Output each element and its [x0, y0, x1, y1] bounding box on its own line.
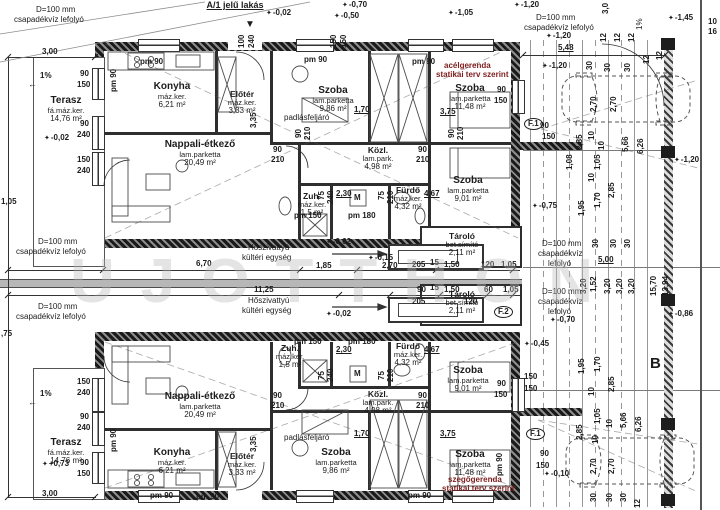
elevation-label: ✦-1,20 — [514, 1, 539, 9]
dim-label: 150 — [77, 470, 90, 478]
dim-label: 150 — [524, 373, 537, 381]
elevation-label: ✦-0,10 — [544, 470, 569, 478]
dim-label: 10 — [598, 141, 606, 150]
elevation-marker-icon: ✦ — [514, 2, 520, 9]
washing-machine-label: M — [354, 370, 361, 378]
room-ar: 4,98 m² — [364, 163, 391, 172]
dim-label: 2,30 — [336, 190, 352, 198]
dim-label: 3,00 — [42, 48, 58, 56]
dim-label: 3,20 — [604, 278, 612, 294]
dim-label: 12 — [628, 33, 636, 42]
dim-label: 10 — [588, 387, 596, 396]
room-ar: 20,49 m² — [184, 411, 216, 420]
room-label-konyha-also: Konyhamáz.ker.6,21 m² — [137, 448, 207, 476]
room-ar: 2,11 m² — [449, 249, 476, 258]
elevation-marker-icon: ✦ — [532, 203, 538, 210]
dim-label: 2,85 — [576, 424, 584, 440]
note-label: csapadékvíz — [538, 298, 582, 306]
elevation-label: ✦-1,20 — [542, 62, 567, 70]
dim-label: 2,85 — [576, 134, 584, 150]
attic-access-label: padlásfeljáró — [284, 114, 329, 122]
note-label: kültéri egység — [242, 254, 291, 262]
room-label-nappali-felso: Nappali-étkezőlam.parketta20,49 m² — [152, 140, 248, 168]
elevation-label: ✦-0,75 — [532, 202, 557, 210]
elevation-label: ✦-0,02 — [326, 238, 351, 246]
reference-marker: F.1 — [526, 428, 545, 440]
dim-label: 1,70 — [594, 192, 602, 208]
reference-marker: F.2 — [494, 306, 513, 318]
dim-label: 90 — [418, 392, 427, 400]
room-label-eloter-also: Előtérmáz.ker.3,33 m² — [207, 452, 277, 478]
structural-note: szegőgerenda — [448, 476, 502, 484]
room-ar: 9,01 m² — [454, 385, 481, 394]
dim-label: 6,70 — [196, 260, 212, 268]
dim-label: 12 — [634, 499, 642, 508]
elevation-label: ✦-1,05 — [448, 9, 473, 17]
dim-label: 240 — [77, 167, 90, 175]
dim-label: 150 — [330, 35, 338, 48]
dim-label: 100 — [238, 35, 246, 48]
slope-label: 1% — [40, 390, 52, 398]
structural-note: statikai terv szerint — [436, 71, 508, 79]
dim-label: 1,08 — [566, 154, 574, 170]
elevation-marker-icon: ✦ — [524, 341, 530, 348]
elevation-marker-icon: ✦ — [546, 33, 552, 40]
dim-label: 6,26 — [637, 138, 645, 154]
dim-label: 3,75 — [440, 108, 456, 116]
room-label-terasz-felso: Teraszfá.máz.ker.14,76 m² — [31, 96, 101, 124]
note-label: D=100 mm — [542, 240, 581, 248]
dim-label: 60 — [484, 286, 493, 294]
elevation-marker-icon: ✦ — [550, 317, 556, 324]
room-label-szoba3-felso: Szobalam.parketta9,01 m² — [433, 176, 503, 204]
note-label: csapadékvíz lefolyó — [16, 313, 86, 321]
apartment-label: A/1 jelű lakás — [206, 0, 264, 10]
note-label: csapadékvíz lefolyó — [14, 16, 84, 24]
room-label-kozl-also: Közl.lam.park.4,98 m² — [343, 390, 413, 416]
elevation-marker-icon: ✦ — [448, 10, 454, 17]
dim-label: 240 — [77, 424, 90, 432]
dim-label: 2,70 — [608, 458, 616, 474]
structural-note: acélgerenda — [444, 62, 491, 70]
dim-label: 3,35 — [250, 436, 258, 452]
dim-label: 2,70 — [590, 96, 598, 112]
room-label-eloter-felso: Előtérmáz.ker.3,33 m² — [207, 90, 277, 116]
note-label: D=100 mm — [536, 14, 575, 22]
elevation-label: ✦-0,45 — [524, 340, 549, 348]
room-ar: 1,5 m² — [279, 361, 302, 370]
dim-label: 150 — [524, 385, 537, 393]
dim-label: 3,0 — [602, 3, 610, 14]
dim-label: 150 — [340, 35, 348, 48]
dim-label: 10 — [606, 419, 614, 428]
attic-access-label: padlásfeljáró — [284, 434, 329, 442]
dim-label: 75 — [318, 191, 326, 200]
dim-label: 75 — [378, 191, 386, 200]
dim-label: 1,50 — [444, 261, 460, 269]
room-ar: 4,98 m² — [364, 407, 391, 416]
room-ar: 6,21 m² — [158, 467, 185, 476]
elevation-marker-icon: ✦ — [42, 461, 48, 468]
dim-label: 150 — [77, 81, 90, 89]
dim-label: 240 — [327, 191, 335, 204]
dim-label: pm 90 — [110, 69, 118, 92]
dim-label: 210 — [416, 402, 429, 410]
dim-label: 5,66 — [622, 136, 630, 152]
floor-plan-canvas: A/1 jelű lakás UJOTTHON Teraszfá.máz.ker… — [0, 0, 720, 510]
note-label: D=100 mm — [38, 238, 77, 246]
dim-label: 5,00 — [598, 256, 614, 264]
elevation-label: ✦-1,45 — [668, 14, 693, 22]
dim-label: 240 — [77, 389, 90, 397]
room-ar: 4,32 m² — [394, 203, 421, 212]
dim-label: 30 — [590, 493, 598, 502]
dim-label: 150 — [542, 133, 555, 141]
dim-label: 205 — [412, 261, 425, 269]
dim-label: pm 90 — [408, 492, 431, 500]
washing-machine-label: M — [354, 194, 361, 202]
dim-label: 5,48 — [558, 44, 574, 52]
dim-label: 13,94 — [662, 276, 670, 296]
dim-label: 12 — [614, 33, 622, 42]
dim-label: 1,85 — [316, 262, 332, 270]
note-label: Hőszivattyú — [248, 244, 289, 252]
room-ar: 4,32 m² — [394, 359, 421, 368]
dim-label: 30 — [624, 63, 632, 72]
elevation-label: ✦-0,02 — [326, 310, 351, 318]
elevation-label: ✦-0,70 — [550, 316, 575, 324]
dim-label: 1,70 — [354, 430, 370, 438]
dim-label: 3,00 — [42, 490, 58, 498]
dim-label: pm 90 — [140, 58, 163, 66]
dim-label: 150 — [77, 378, 90, 386]
dim-label: 6,26 — [635, 416, 643, 432]
dim-label: 90 — [273, 392, 282, 400]
dim-label: 1,05 — [501, 261, 517, 269]
dim-label: 240 — [327, 369, 335, 382]
room-ar: 3,33 m² — [228, 469, 255, 478]
elevation-label: ✦-0,86 — [668, 310, 693, 318]
dim-label: pm 180 — [348, 212, 376, 220]
dim-label: 210 — [416, 156, 429, 164]
dim-label: pm 90 — [110, 429, 118, 452]
dim-label: 10 — [588, 131, 596, 140]
dim-label: pm 90 — [496, 453, 504, 476]
room-label-zuh-also: Zuh.máz.ker.1,5 m² — [255, 344, 325, 370]
dim-label: pm 90 — [412, 58, 435, 66]
elevation-label: ✦-0,02 — [266, 9, 291, 17]
dim-label: 30 — [624, 239, 632, 248]
dim-label: pm 90 — [150, 492, 173, 500]
dim-label: 210 — [271, 402, 284, 410]
room-ar: 2,11 m² — [449, 307, 476, 316]
room-label-szoba3-also: Szobalam.parketta9,01 m² — [433, 366, 503, 394]
room-ar: 6,21 m² — [158, 101, 185, 110]
dim-label: 4,67 — [424, 346, 440, 354]
dim-label: 90 — [418, 146, 427, 154]
slope-arrow-icon: ← — [28, 80, 37, 89]
dim-label: 3,20 — [616, 278, 624, 294]
dim-label: 2,70 — [590, 458, 598, 474]
elevation-marker-icon: ✦ — [674, 157, 680, 164]
elevation-marker-icon: ✦ — [44, 135, 50, 142]
dim-label: pm 90 — [304, 56, 327, 64]
dim-label: 90 — [417, 286, 426, 294]
dim-label: 75 — [378, 371, 386, 380]
elevation-marker-icon: ✦ — [326, 239, 332, 246]
note-label: D=100 mm — [542, 288, 581, 296]
dim-label: 75 — [318, 371, 326, 380]
dim-label: 90 — [80, 70, 89, 78]
dim-label: 10 — [588, 173, 596, 182]
elevation-marker-icon: ✦ — [326, 311, 332, 318]
elevation-marker-icon: ✦ — [542, 63, 548, 70]
dim-label: 3,20 — [628, 278, 636, 294]
dim-label: 2,85 — [608, 376, 616, 392]
room-label-kozl-felso: Közl.lam.park.4,98 m² — [343, 146, 413, 172]
elevation-marker-icon: ✦ — [342, 2, 348, 9]
structural-note: statikai terv szerint — [442, 485, 514, 493]
dim-label: 90 — [295, 129, 303, 138]
entrance-marker-icon: ▼ — [245, 20, 255, 30]
dim-label: 2,85 — [608, 182, 616, 198]
elevation-label: ✦-1,20 — [674, 156, 699, 164]
elevation-label: ✦+0,73 — [42, 460, 69, 468]
dim-label: 2,70 — [610, 96, 618, 112]
room-ar: 20,49 m² — [184, 159, 216, 168]
dim-label: 30 — [606, 493, 614, 502]
note-label: Hőszivattyú — [248, 297, 289, 305]
room-ar: 14,76 m² — [50, 115, 82, 124]
dim-label: 16 — [708, 28, 717, 36]
dim-label: 90 — [448, 129, 456, 138]
dim-label: 10 — [592, 435, 600, 444]
dim-label: 90 — [80, 120, 89, 128]
dim-label: 12 — [656, 51, 664, 60]
dim-label: 1,70 — [594, 356, 602, 372]
dim-label: 30 — [620, 493, 628, 502]
elevation-label: ✦-0,70 — [342, 1, 367, 9]
dim-label: 90 — [540, 450, 549, 458]
dim-label: 150 — [494, 97, 507, 105]
dim-label: 210 — [457, 127, 465, 140]
dim-label: pm 150 — [294, 212, 322, 220]
dim-label: 1,95 — [578, 358, 586, 374]
dim-label: pm 150 — [294, 338, 322, 346]
room-label-nappali-also: Nappali-étkezőlam.parketta20,49 m² — [152, 392, 248, 420]
room-label-szoba1-also: Szobalam.parketta9,86 m² — [301, 448, 371, 476]
dim-label: 150 — [536, 462, 549, 470]
dim-label: ,75 — [1, 330, 12, 338]
slope-label: 1% — [40, 72, 52, 80]
dim-label: 210 — [304, 127, 312, 140]
dim-label: 210 — [387, 369, 395, 382]
note-label: csapadékvíz lefolyó — [16, 248, 86, 256]
dim-label: 210 — [387, 191, 395, 204]
dim-label: 150 — [77, 156, 90, 164]
dim-label: 1,52 — [590, 276, 598, 292]
dim-label: 15 — [430, 284, 439, 292]
dim-label: 1,05 — [503, 286, 519, 294]
elevation-label: ✦-0,02 — [44, 134, 69, 142]
dim-label: 12 — [643, 55, 651, 64]
slope-label: 1% — [636, 18, 644, 30]
elevation-label: ✦-0,50 — [334, 12, 359, 20]
room-label-tarolo-felso: Tárolóbet.símító2,11 m² — [427, 232, 497, 258]
dim-label: 90 — [80, 459, 89, 467]
elevation-marker-icon: ✦ — [368, 255, 374, 262]
dim-label: 3,75 — [440, 430, 456, 438]
dim-label: 30 — [610, 239, 618, 248]
room-label-konyha-felso: Konyhamáz.ker.6,21 m² — [137, 82, 207, 110]
dim-label: 15 — [430, 259, 439, 267]
elevation-marker-icon: ✦ — [668, 15, 674, 22]
dim-label: 30 — [586, 61, 594, 70]
dim-label: 12 — [600, 33, 608, 42]
dim-label: 1,70 — [354, 106, 370, 114]
dim-label: 2,30 — [336, 346, 352, 354]
slope-arrow-icon: ← — [28, 398, 37, 407]
dim-label: 10 — [708, 18, 717, 26]
room-ar: 9,01 m² — [454, 195, 481, 204]
dim-label: 1,50 — [444, 286, 460, 294]
dim-label: 1,05 — [1, 198, 17, 206]
dim-label: 30 — [592, 239, 600, 248]
dim-label: 4,67 — [424, 190, 440, 198]
dim-label: 150 — [494, 391, 507, 399]
note-label: D=100 mm — [36, 6, 75, 14]
dim-label: 11,25 — [254, 286, 274, 294]
dim-label: 90 — [497, 380, 506, 388]
note-label: D=100 mm — [38, 303, 77, 311]
dim-label: 90 — [497, 86, 506, 94]
elevation-marker-icon: ✦ — [668, 311, 674, 318]
dim-label: 3,35 — [250, 112, 258, 128]
dim-label: 90 — [540, 122, 549, 130]
elevation-label: ✦-1,20 — [546, 32, 571, 40]
room-ar: 11,48 m² — [455, 103, 486, 112]
dim-label: 120 — [481, 261, 494, 269]
room-ar: 9,86 m² — [322, 467, 349, 476]
elevation-marker-icon: ✦ — [266, 10, 272, 17]
elevation-marker-icon: ✦ — [544, 471, 550, 478]
dim-label: 30 — [604, 63, 612, 72]
note-label: lefolyó — [548, 260, 571, 268]
dim-label: 240 — [248, 35, 256, 48]
dim-label: 120 — [464, 298, 477, 306]
note-label: csapadékvíz — [538, 250, 582, 258]
section-marker: B — [650, 356, 661, 371]
dim-label: 3,20 — [580, 278, 588, 294]
dim-label: pm 90 — [196, 493, 219, 501]
note-label: kültéri egység — [242, 307, 291, 315]
dim-label: 90 — [273, 146, 282, 154]
dim-label: 210 — [271, 156, 284, 164]
dim-label: 15,70 — [650, 276, 658, 296]
dim-label: 205 — [412, 298, 425, 306]
dim-label: pm 180 — [348, 338, 376, 346]
dim-label: 90 — [80, 413, 89, 421]
dim-label: 1,05 — [594, 154, 602, 170]
dim-label: 5,66 — [620, 412, 628, 428]
elevation-marker-icon: ✦ — [334, 13, 340, 20]
dim-label: 240 — [77, 131, 90, 139]
dim-label: 1,05 — [594, 408, 602, 424]
dim-label: 1,95 — [578, 200, 586, 216]
dim-label: 2,70 — [382, 262, 398, 270]
